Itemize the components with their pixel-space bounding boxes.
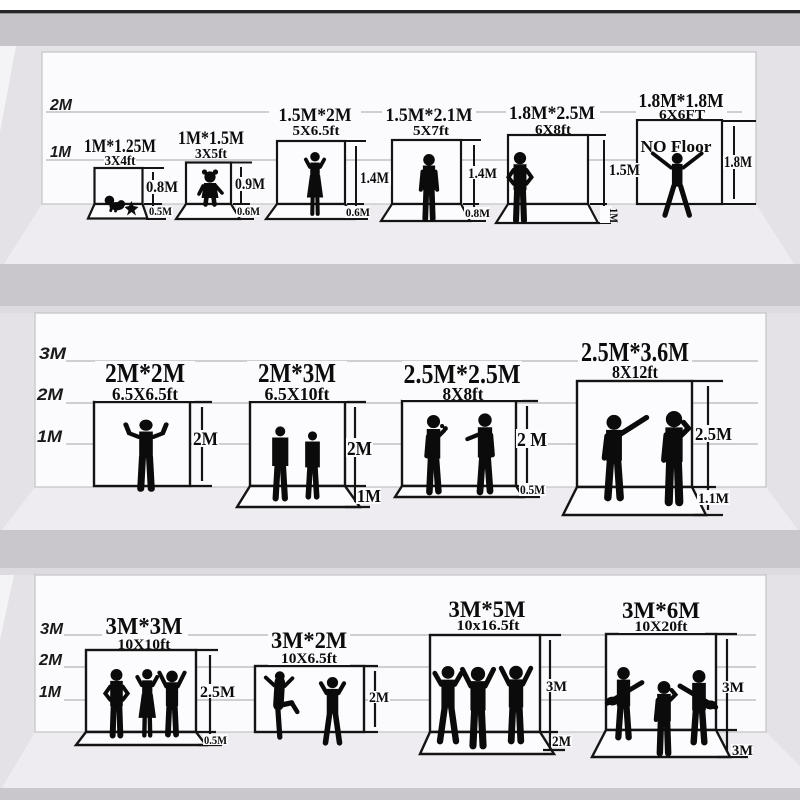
svg-text:0.6M: 0.6M [346,205,370,219]
svg-text:10X6.5ft: 10X6.5ft [281,651,337,667]
svg-text:1M: 1M [37,427,63,446]
svg-text:5X6.5ft: 5X6.5ft [293,124,340,139]
svg-text:1M: 1M [607,208,621,223]
svg-text:0.5M: 0.5M [149,204,172,218]
svg-text:1.5M*2M: 1.5M*2M [279,105,352,126]
svg-text:3M: 3M [732,743,753,759]
svg-text:0.8M: 0.8M [146,179,178,196]
svg-text:0.5M: 0.5M [520,482,545,497]
svg-text:1.5M*2.1M: 1.5M*2.1M [386,105,473,126]
svg-text:3X5ft: 3X5ft [195,147,227,162]
svg-text:2.5M: 2.5M [695,424,732,444]
svg-text:1M: 1M [50,144,72,161]
svg-text:0.5M: 0.5M [204,733,227,747]
svg-text:2M: 2M [369,690,389,706]
svg-text:NO Floor: NO Floor [641,137,712,156]
svg-text:3M: 3M [40,621,64,638]
svg-text:3M: 3M [546,679,567,695]
svg-text:2M: 2M [49,97,73,114]
svg-text:0.9M: 0.9M [235,176,265,193]
svg-text:5X7ft: 5X7ft [413,124,449,139]
svg-text:1.5M: 1.5M [609,162,640,179]
svg-text:1M*1.5M: 1M*1.5M [178,128,244,149]
svg-text:8X12ft: 8X12ft [612,362,658,382]
svg-text:3M: 3M [39,344,67,363]
svg-text:2 M: 2 M [517,429,547,451]
svg-text:6.5X6.5ft: 6.5X6.5ft [112,384,178,404]
svg-text:2M: 2M [193,429,218,450]
svg-text:6X8ft: 6X8ft [535,123,571,138]
svg-text:2M: 2M [347,438,372,460]
svg-text:1.4M: 1.4M [468,166,497,182]
svg-text:2.5M: 2.5M [200,684,235,701]
svg-text:10X10ft: 10X10ft [118,637,171,653]
svg-text:3X4ft: 3X4ft [105,154,136,169]
svg-text:6X6FT: 6X6FT [659,108,706,123]
svg-text:2M: 2M [552,734,571,750]
svg-text:1.4M: 1.4M [360,170,389,187]
svg-text:1.8M: 1.8M [724,154,752,171]
svg-text:8X8ft: 8X8ft [443,384,484,404]
svg-text:10X20ft: 10X20ft [635,619,688,635]
svg-text:3M: 3M [722,680,744,696]
svg-text:10x16.5ft: 10x16.5ft [457,618,520,634]
svg-text:1.1M: 1.1M [698,491,729,507]
svg-text:1.8M*2.5M: 1.8M*2.5M [509,103,595,124]
svg-text:0.6M: 0.6M [237,204,260,218]
svg-text:3M*2M: 3M*2M [271,628,347,653]
svg-text:6.5X10ft: 6.5X10ft [265,384,330,404]
svg-text:2M: 2M [38,652,63,669]
svg-text:1M: 1M [39,684,62,701]
svg-text:1M: 1M [357,486,381,506]
svg-text:0.8M: 0.8M [465,206,490,220]
svg-text:2M: 2M [36,385,64,404]
